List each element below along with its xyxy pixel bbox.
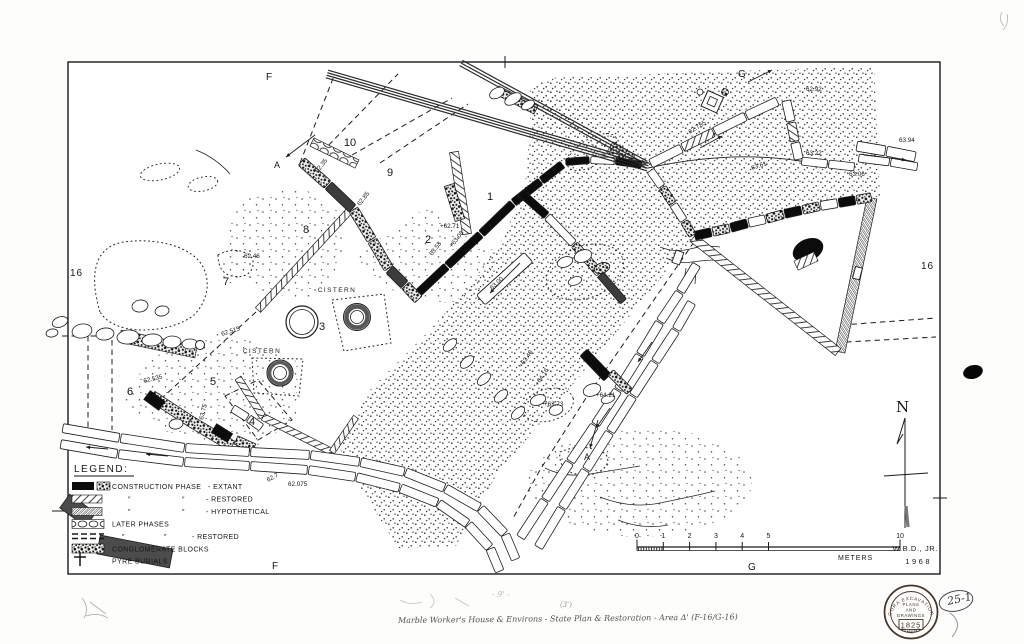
grid-label-f-top: F <box>266 72 273 83</box>
legend-swatch-conglomerate <box>72 544 104 553</box>
scale-tick-label: 5 <box>767 533 771 540</box>
legend-swatch-extant <box>72 482 94 490</box>
legend-row-label: ″ <box>182 497 185 504</box>
legend-row-label: ″ <box>164 534 167 541</box>
grid-label-g-top: G <box>738 69 747 80</box>
scale-tick-label: 10 <box>896 533 904 540</box>
loose-stone <box>722 89 729 96</box>
room-number-label: 6 <box>127 386 133 398</box>
legend-row-label: - HYPOTHETICAL <box>206 509 270 516</box>
legend-row-label: CONSTRUCTION PHASE <box>112 484 201 491</box>
section-marker-label: A <box>274 160 280 170</box>
spot-elevation-label: 63.22 <box>806 150 822 157</box>
legend-row-label: CONGLOMERATE BLOCKS <box>112 547 209 554</box>
stamp-line3: DRAWINGS <box>897 613 925 618</box>
scale-tick-label: 1 <box>661 533 665 540</box>
legend-row-label: ″ <box>128 509 131 516</box>
cistern-ring <box>351 311 364 324</box>
spot-elevation-label: 63.06 <box>849 171 865 178</box>
wall-stone <box>566 157 590 166</box>
spot-elevation-label: +62.71 <box>440 223 460 230</box>
legend-swatch-restored <box>72 495 102 503</box>
site-plan-drawing: F G F G 16 16 1234567891062.4662.9263.22… <box>0 0 1024 644</box>
section-marker-label: A <box>584 452 590 462</box>
room-number-label: 5 <box>210 376 216 388</box>
room-number-label: 7 <box>223 276 229 288</box>
legend-swatch-extant-2 <box>97 482 110 490</box>
legend-row-label: - RESTORED <box>192 534 239 541</box>
grid-label-g-bottom: G <box>748 562 757 573</box>
room-number-label: 9 <box>387 167 393 179</box>
spot-elevation-label: +63.73 <box>544 401 564 408</box>
spot-elevation-label: +64.21 <box>596 392 616 399</box>
legend-swatch-later-phases <box>72 520 104 529</box>
room-number-label: 4 <box>249 416 255 428</box>
legend-row-label: ″ <box>182 509 185 516</box>
scale-tick-label: 2 <box>688 533 692 540</box>
room-number-label: 8 <box>303 224 309 236</box>
grid-label-16-left: 16 <box>70 268 83 279</box>
legend-row-label: - RESTORED <box>206 497 253 504</box>
legend-row-label: PYRE BURIALS <box>112 559 168 566</box>
scale-tick-label: 3 <box>714 533 718 540</box>
stamp-line2: AND <box>906 608 917 613</box>
legend-swatch-hypothetical <box>72 508 102 516</box>
spot-elevation-label: 63.94 <box>899 137 915 144</box>
grid-label-f-bottom: F <box>272 561 279 572</box>
cistern-label: CISTERN <box>243 348 281 355</box>
spot-elevation-label: 62.46 <box>244 253 260 260</box>
spot-elevation-label: 62.92 <box>806 86 822 93</box>
scale-tick-label: 4 <box>740 533 744 540</box>
stamp-number: 1825 <box>901 621 922 630</box>
spot-elevation-label: 62.075 <box>288 481 308 488</box>
scale-tick-label: 0 <box>635 533 639 540</box>
legend-heading: LEGEND: <box>74 464 128 475</box>
scanned-plan-page: F G F G 16 16 1234567891062.4662.9263.22… <box>0 0 1024 644</box>
room-number-label: 3 <box>319 321 325 333</box>
cistern-label: CISTERN <box>318 287 356 294</box>
legend-row-label: ″ <box>128 497 131 504</box>
room-number-label: 2 <box>425 234 431 246</box>
stamp-line1: PLANS <box>903 602 920 607</box>
legend-row-label: - EXTANT <box>208 484 243 491</box>
year-label: 1968 <box>905 557 932 566</box>
cistern-ring <box>196 341 205 350</box>
faint-note-2: (3') <box>560 601 572 609</box>
north-label: N <box>896 398 909 416</box>
legend-row-label: ″ <box>122 534 125 541</box>
room-number-label: 1 <box>487 191 493 203</box>
grid-label-16-right: 16 <box>921 261 934 272</box>
scale-unit-label: METERS <box>838 555 873 562</box>
loose-stone <box>697 89 703 95</box>
faint-note: - 9' - <box>492 590 510 599</box>
cistern-ring <box>286 306 318 338</box>
author-initials: W.B.D., JR. <box>893 544 938 553</box>
cistern-ring <box>274 367 287 380</box>
legend-row-label: LATER PHASES <box>112 522 169 529</box>
room-number-label: 10 <box>344 137 356 149</box>
